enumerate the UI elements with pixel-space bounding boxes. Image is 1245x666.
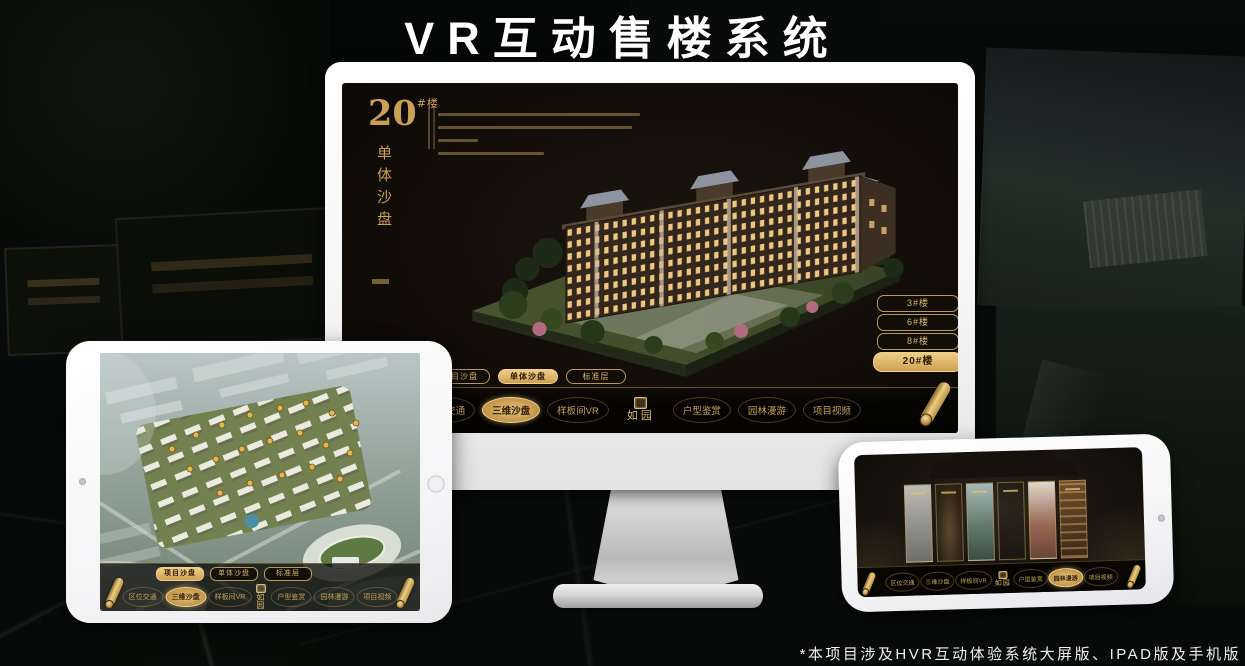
scroll-icon[interactable] (918, 380, 952, 426)
scroll-icon[interactable] (395, 576, 415, 607)
main-menu: 区位交通 三维沙盘 样板间VR 如园 户型鉴赏 园林漫游 项目视频 (402, 397, 876, 422)
sandbox-tabs: 项目沙盘 单体沙盘 标准层 (430, 369, 626, 384)
scroll-icon[interactable] (1127, 564, 1142, 587)
menu-item-project-video[interactable]: 项目视频 (359, 591, 395, 603)
ruyuan-logo: 如园 (995, 571, 1011, 587)
menu-item-floorplan-gallery[interactable]: 户型鉴赏 (676, 402, 728, 418)
background-plaque-small (4, 244, 124, 356)
sandbox-tabs: 项目沙盘 单体沙盘 标准层 (156, 567, 312, 581)
floor-button-6[interactable]: 6#楼 (877, 314, 958, 331)
menu-item-garden-tour[interactable]: 园林漫游 (1051, 571, 1081, 583)
page-title: VR互动售楼系统 (0, 2, 1245, 67)
logo-text: 如园 (627, 411, 655, 422)
tablet-menu-bar: 项目沙盘 单体沙盘 标准层 区位交通 三维沙盘 样板间VR 如园 户型鉴赏 园林… (100, 563, 420, 611)
menu-item-3d-sandbox[interactable]: 三维沙盘 (168, 591, 204, 603)
menu-item-garden-tour[interactable]: 园林漫游 (741, 402, 793, 418)
floor-button-3[interactable]: 3#楼 (877, 295, 958, 312)
description-text-line (438, 126, 632, 129)
gallery-card-interior[interactable] (935, 483, 964, 562)
menu-item-3d-sandbox[interactable]: 三维沙盘 (922, 575, 952, 587)
monitor-stand-neck (592, 488, 740, 588)
seal-icon (256, 584, 266, 593)
tab-project-sandbox[interactable]: 项目沙盘 (156, 567, 204, 581)
gallery-card-autumn[interactable] (1028, 481, 1057, 560)
menu-item-model-room-vr[interactable]: 样板间VR (550, 402, 606, 418)
menu-item-model-room-vr[interactable]: 样板间VR (211, 591, 250, 603)
ruyuan-logo: 如园 (627, 397, 655, 422)
gallery-card-study[interactable] (1059, 480, 1088, 559)
menu-item-floorplan-gallery[interactable]: 户型鉴赏 (273, 591, 309, 603)
tab-single-building-sandbox[interactable]: 单体沙盘 (498, 369, 558, 384)
floor-button-8[interactable]: 8#楼 (877, 333, 958, 350)
menu-item-project-video[interactable]: 项目视频 (806, 402, 858, 418)
menu-item-location-traffic[interactable]: 区位交通 (887, 576, 917, 588)
background-plaque-large (115, 206, 356, 350)
tablet-camera-dot (79, 478, 86, 485)
tab-single-building-sandbox[interactable]: 单体沙盘 (210, 567, 258, 581)
phone-screen: 区位交通 三维沙盘 样板间VR 如园 户型鉴赏 园林漫游 项目视频 (854, 447, 1146, 597)
main-menu: 区位交通 三维沙盘 样板间VR 如园 户型鉴赏 园林漫游 项目视频 (883, 568, 1119, 591)
phone-camera-dot (1158, 515, 1165, 522)
poster-canvas: VR互动售楼系统 20#楼 单体沙盘 (0, 0, 1245, 666)
building-subtitle-vertical: 单体沙盘 (374, 145, 395, 233)
subtitle-seal-mark (372, 279, 389, 284)
scroll-icon[interactable] (862, 571, 877, 594)
courtyard-gate-silhouette (928, 449, 1079, 479)
menu-item-location-traffic[interactable]: 区位交通 (125, 591, 161, 603)
tablet-screen: 项目沙盘 单体沙盘 标准层 区位交通 三维沙盘 样板间VR 如园 户型鉴赏 园林… (100, 353, 420, 611)
background-aerial-photo-top (978, 47, 1245, 314)
scene-gallery (904, 480, 1088, 563)
floor-button-20[interactable]: 20#楼 (873, 352, 958, 372)
ruyuan-logo: 如园 (256, 584, 266, 610)
logo-text: 如园 (256, 594, 266, 610)
gallery-card-garden[interactable] (966, 482, 995, 561)
seal-icon (634, 397, 647, 409)
main-menu: 区位交通 三维沙盘 样板间VR 如园 户型鉴赏 园林漫游 项目视频 (134, 584, 386, 610)
tab-standard-floor[interactable]: 标准层 (566, 369, 626, 384)
gallery-card-facade[interactable] (997, 481, 1026, 560)
scroll-icon[interactable] (104, 576, 124, 607)
description-text-line (438, 113, 640, 116)
menu-item-project-video[interactable]: 项目视频 (1086, 570, 1116, 582)
footnote-caption: *本项目涉及HVR互动体验系统大屏版、IPAD版及手机版 (800, 643, 1241, 664)
tablet-home-button (427, 475, 445, 493)
gallery-card-courtyard[interactable] (904, 484, 933, 563)
menu-item-floorplan-gallery[interactable]: 户型鉴赏 (1016, 572, 1046, 584)
menu-item-3d-sandbox[interactable]: 三维沙盘 (485, 402, 537, 418)
menu-item-garden-tour[interactable]: 园林漫游 (316, 591, 352, 603)
building-model-render (454, 135, 912, 385)
tablet-device: 项目沙盘 单体沙盘 标准层 区位交通 三维沙盘 样板间VR 如园 户型鉴赏 园林… (66, 341, 452, 623)
logo-text: 如园 (995, 580, 1011, 587)
monitor-stand-base (553, 584, 763, 608)
vertical-english-caption (428, 107, 430, 149)
seal-icon (998, 571, 1007, 579)
phone-device: 区位交通 三维沙盘 样板间VR 如园 户型鉴赏 园林漫游 项目视频 (838, 433, 1175, 612)
building-number: 20 (368, 93, 417, 134)
tab-standard-floor[interactable]: 标准层 (264, 567, 312, 581)
menu-item-model-room-vr[interactable]: 样板间VR (957, 574, 990, 586)
